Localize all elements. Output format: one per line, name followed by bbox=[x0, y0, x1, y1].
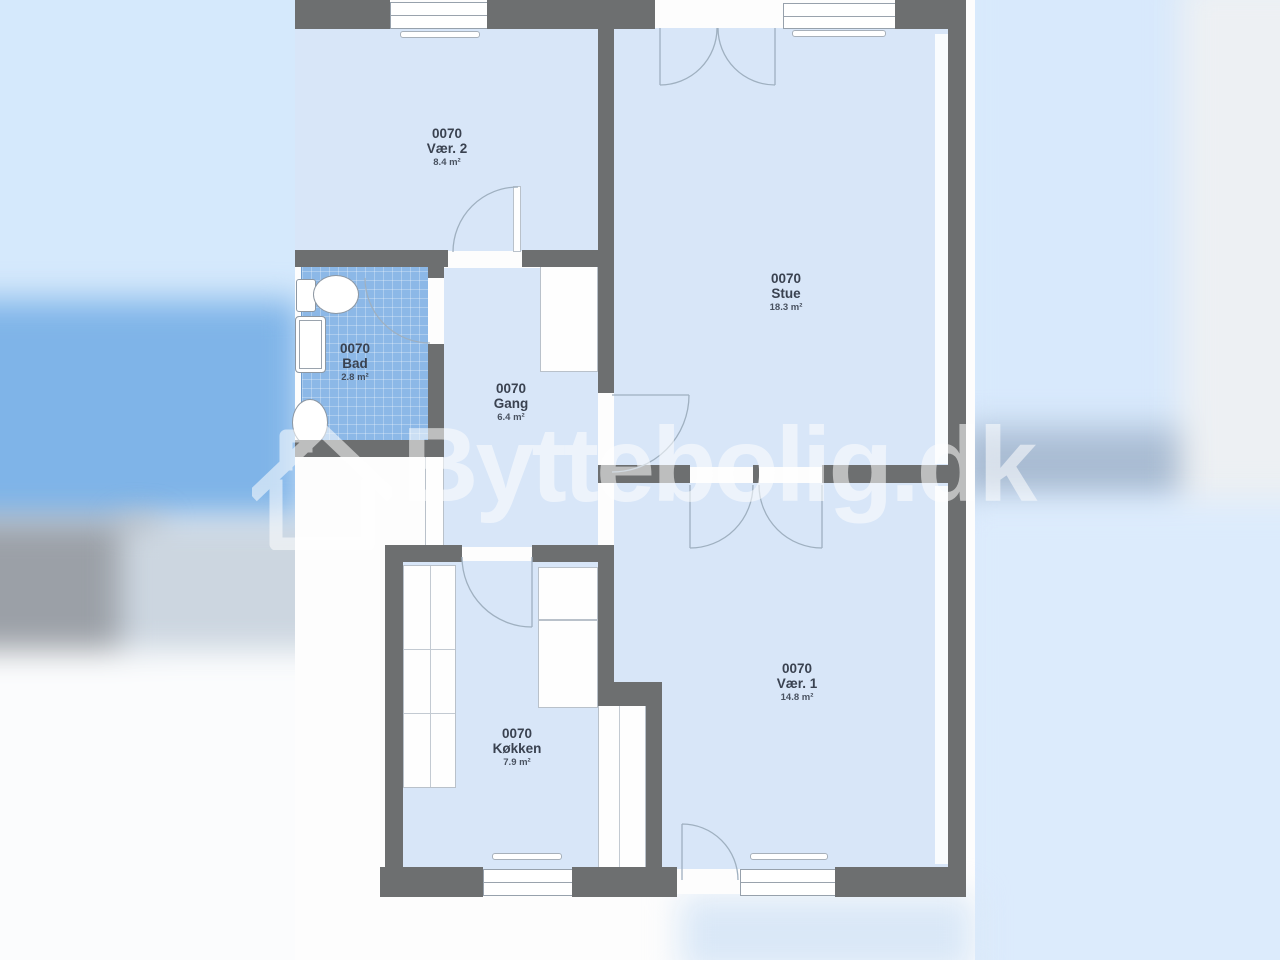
arc-vaer1-left-door bbox=[690, 485, 753, 548]
door-swing-arcs bbox=[0, 0, 1280, 960]
room-area: 2.8 m² bbox=[340, 372, 370, 384]
room-name: Vær. 2 bbox=[427, 141, 468, 157]
room-label-gang: 0070 Gang 6.4 m² bbox=[494, 381, 529, 424]
room-number: 0070 bbox=[777, 661, 818, 676]
arc-vaer1-right-door bbox=[759, 485, 822, 548]
room-name: Stue bbox=[770, 286, 803, 302]
room-name: Køkken bbox=[493, 741, 542, 757]
room-number: 0070 bbox=[427, 126, 468, 141]
room-name: Vær. 1 bbox=[777, 676, 818, 692]
room-name: Gang bbox=[494, 396, 529, 412]
room-number: 0070 bbox=[493, 726, 542, 741]
room-label-stue: 0070 Stue 18.3 m² bbox=[770, 271, 803, 314]
arc-stue-door bbox=[612, 395, 689, 472]
room-area: 14.8 m² bbox=[777, 692, 818, 704]
room-name: Bad bbox=[340, 356, 370, 372]
room-label-vaer-2: 0070 Vær. 2 8.4 m² bbox=[427, 126, 468, 169]
room-number: 0070 bbox=[494, 381, 529, 396]
room-area: 8.4 m² bbox=[427, 157, 468, 169]
room-label-bad: 0070 Bad 2.8 m² bbox=[340, 341, 370, 384]
room-area: 6.4 m² bbox=[494, 412, 529, 424]
arc-bad-door bbox=[365, 278, 430, 343]
room-label-vaer-1: 0070 Vær. 1 14.8 m² bbox=[777, 661, 818, 704]
arc-french-left bbox=[660, 28, 717, 85]
arc-balcony-door bbox=[682, 824, 738, 880]
floorplan-image: 0070 Vær. 2 8.4 m² 0070 Stue 18.3 m² 007… bbox=[0, 0, 1280, 960]
room-number: 0070 bbox=[340, 341, 370, 356]
arc-kokken-door bbox=[462, 557, 532, 627]
arc-vaer2-door bbox=[453, 187, 518, 252]
room-label-kokken: 0070 Køkken 7.9 m² bbox=[493, 726, 542, 769]
room-area: 7.9 m² bbox=[493, 757, 542, 769]
room-area: 18.3 m² bbox=[770, 302, 803, 314]
arc-french-right bbox=[718, 28, 775, 85]
room-number: 0070 bbox=[770, 271, 803, 286]
